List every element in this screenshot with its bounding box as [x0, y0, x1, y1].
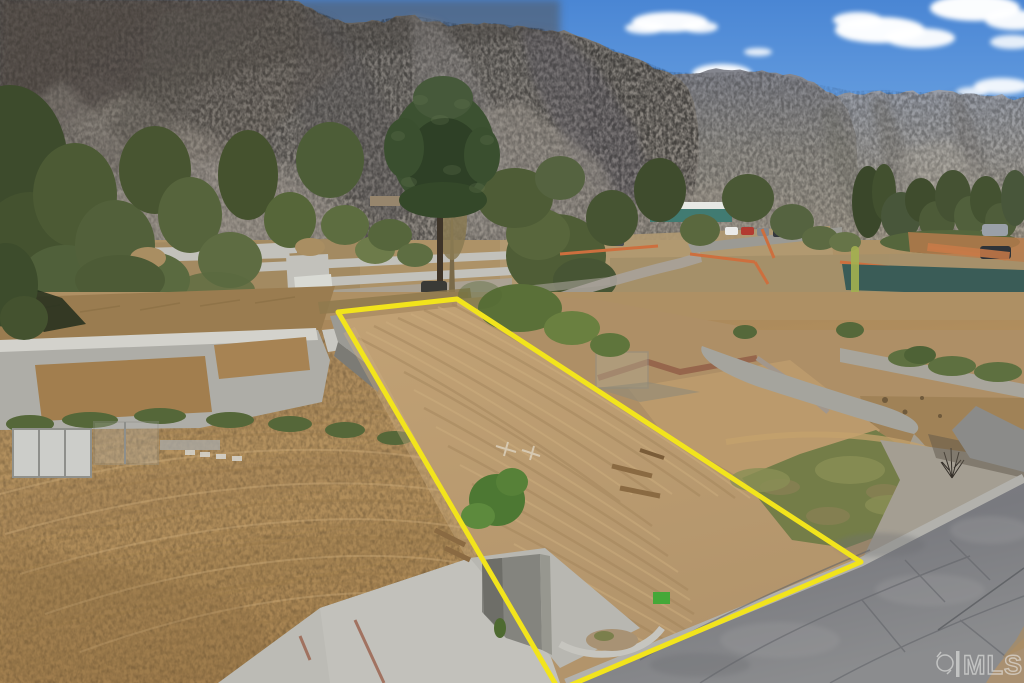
- svg-text:MLS: MLS: [963, 650, 1023, 680]
